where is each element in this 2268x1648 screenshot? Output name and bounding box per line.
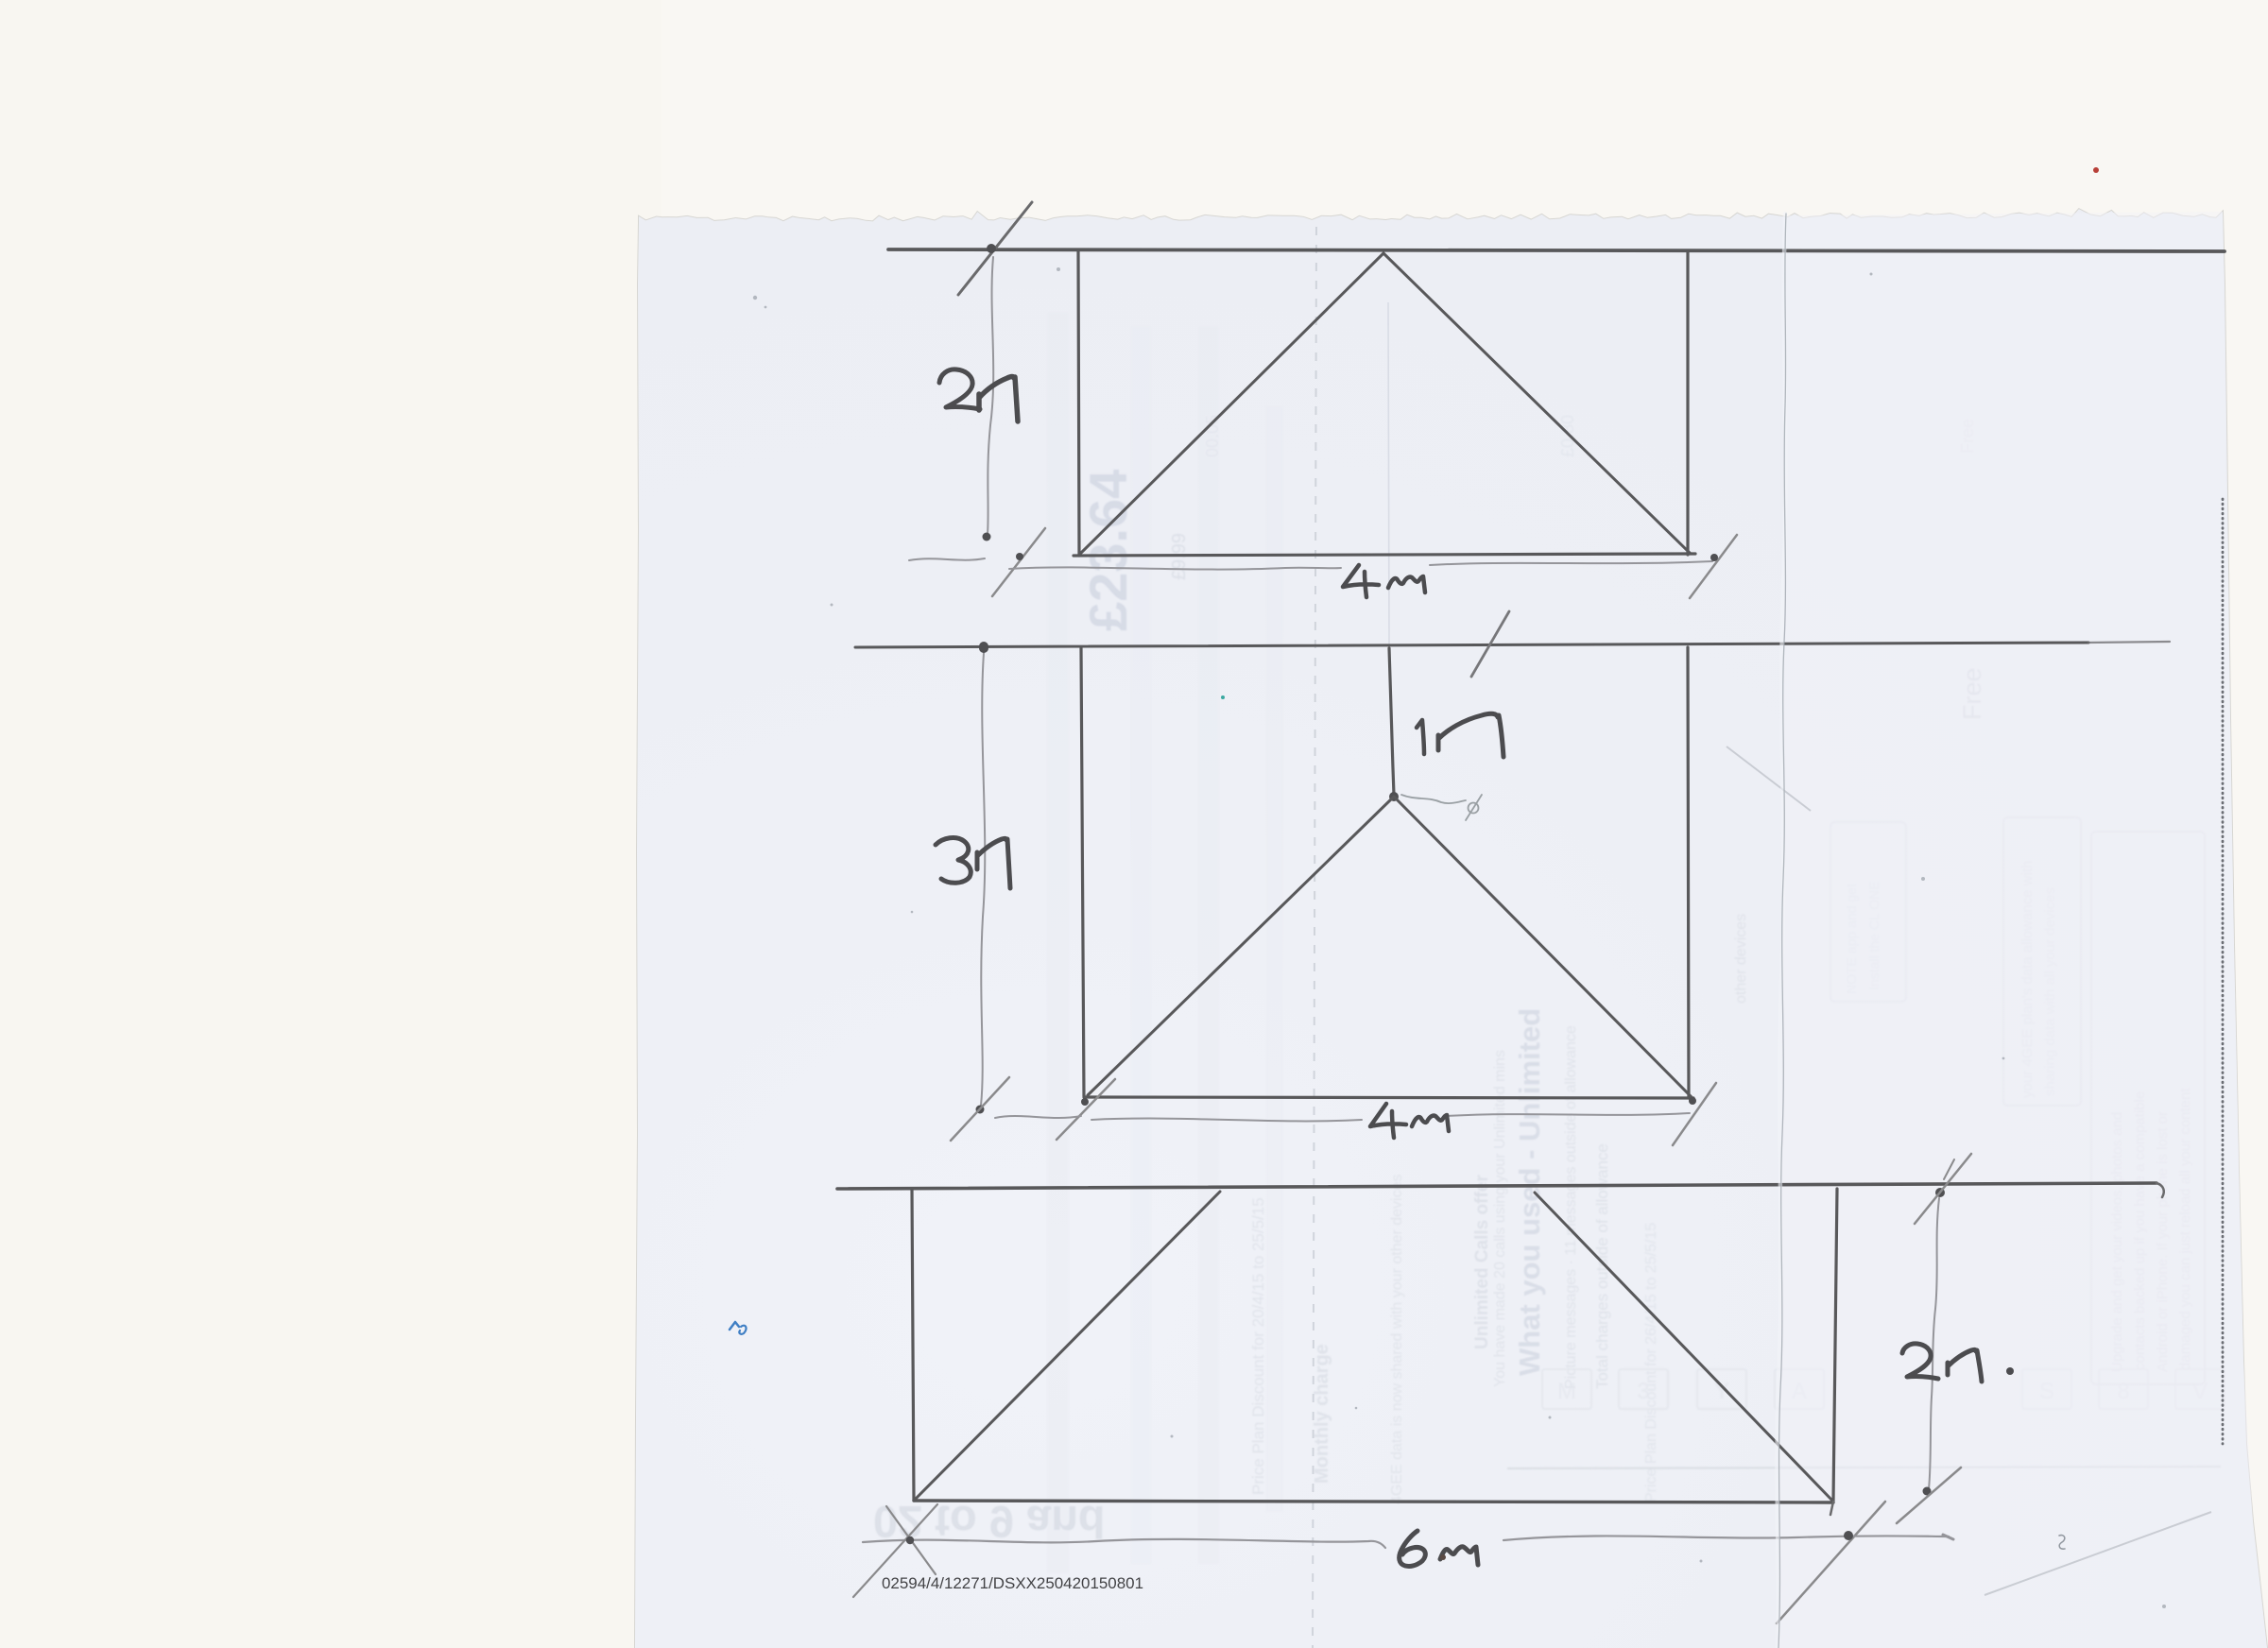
- svg-text:4GEE data is now shared with y: 4GEE data is now shared with your other …: [1389, 1174, 1405, 1504]
- svg-text:£0.80: £0.80: [1558, 415, 1577, 457]
- svg-text:What you used - Unlimited: What you used - Unlimited: [1513, 1008, 1546, 1376]
- svg-text:M: M: [1557, 1379, 1576, 1404]
- svg-text:Picture messages · 11 messages: Picture messages · 11 messages outside o…: [1563, 1025, 1579, 1389]
- svg-text:Price Plan Discount for 26/4/1: Price Plan Discount for 26/4/15 to 25/5/…: [1643, 1223, 1659, 1502]
- svg-text:02594/4/12271/DSXX250420150801: 02594/4/12271/DSXX250420150801: [882, 1575, 1143, 1592]
- svg-text:other devices: other devices: [1733, 914, 1749, 1004]
- svg-text:You have made 20 calls using y: You have made 20 calls using your Unlimi…: [1492, 1050, 1508, 1387]
- svg-text:Total charges outside of allow: Total charges outside of allowance: [1593, 1143, 1611, 1389]
- svg-text:3: 3: [1637, 1379, 1649, 1404]
- svg-text:Price Plan Discount for 20/4/1: Price Plan Discount for 20/4/15 to 25/5/…: [1249, 1197, 1267, 1495]
- svg-text:Monthly charge: Monthly charge: [1312, 1344, 1332, 1484]
- svg-text:£23.64: £23.64: [1078, 470, 1138, 631]
- svg-text:Unlimited Calls offer: Unlimited Calls offer: [1472, 1175, 1492, 1349]
